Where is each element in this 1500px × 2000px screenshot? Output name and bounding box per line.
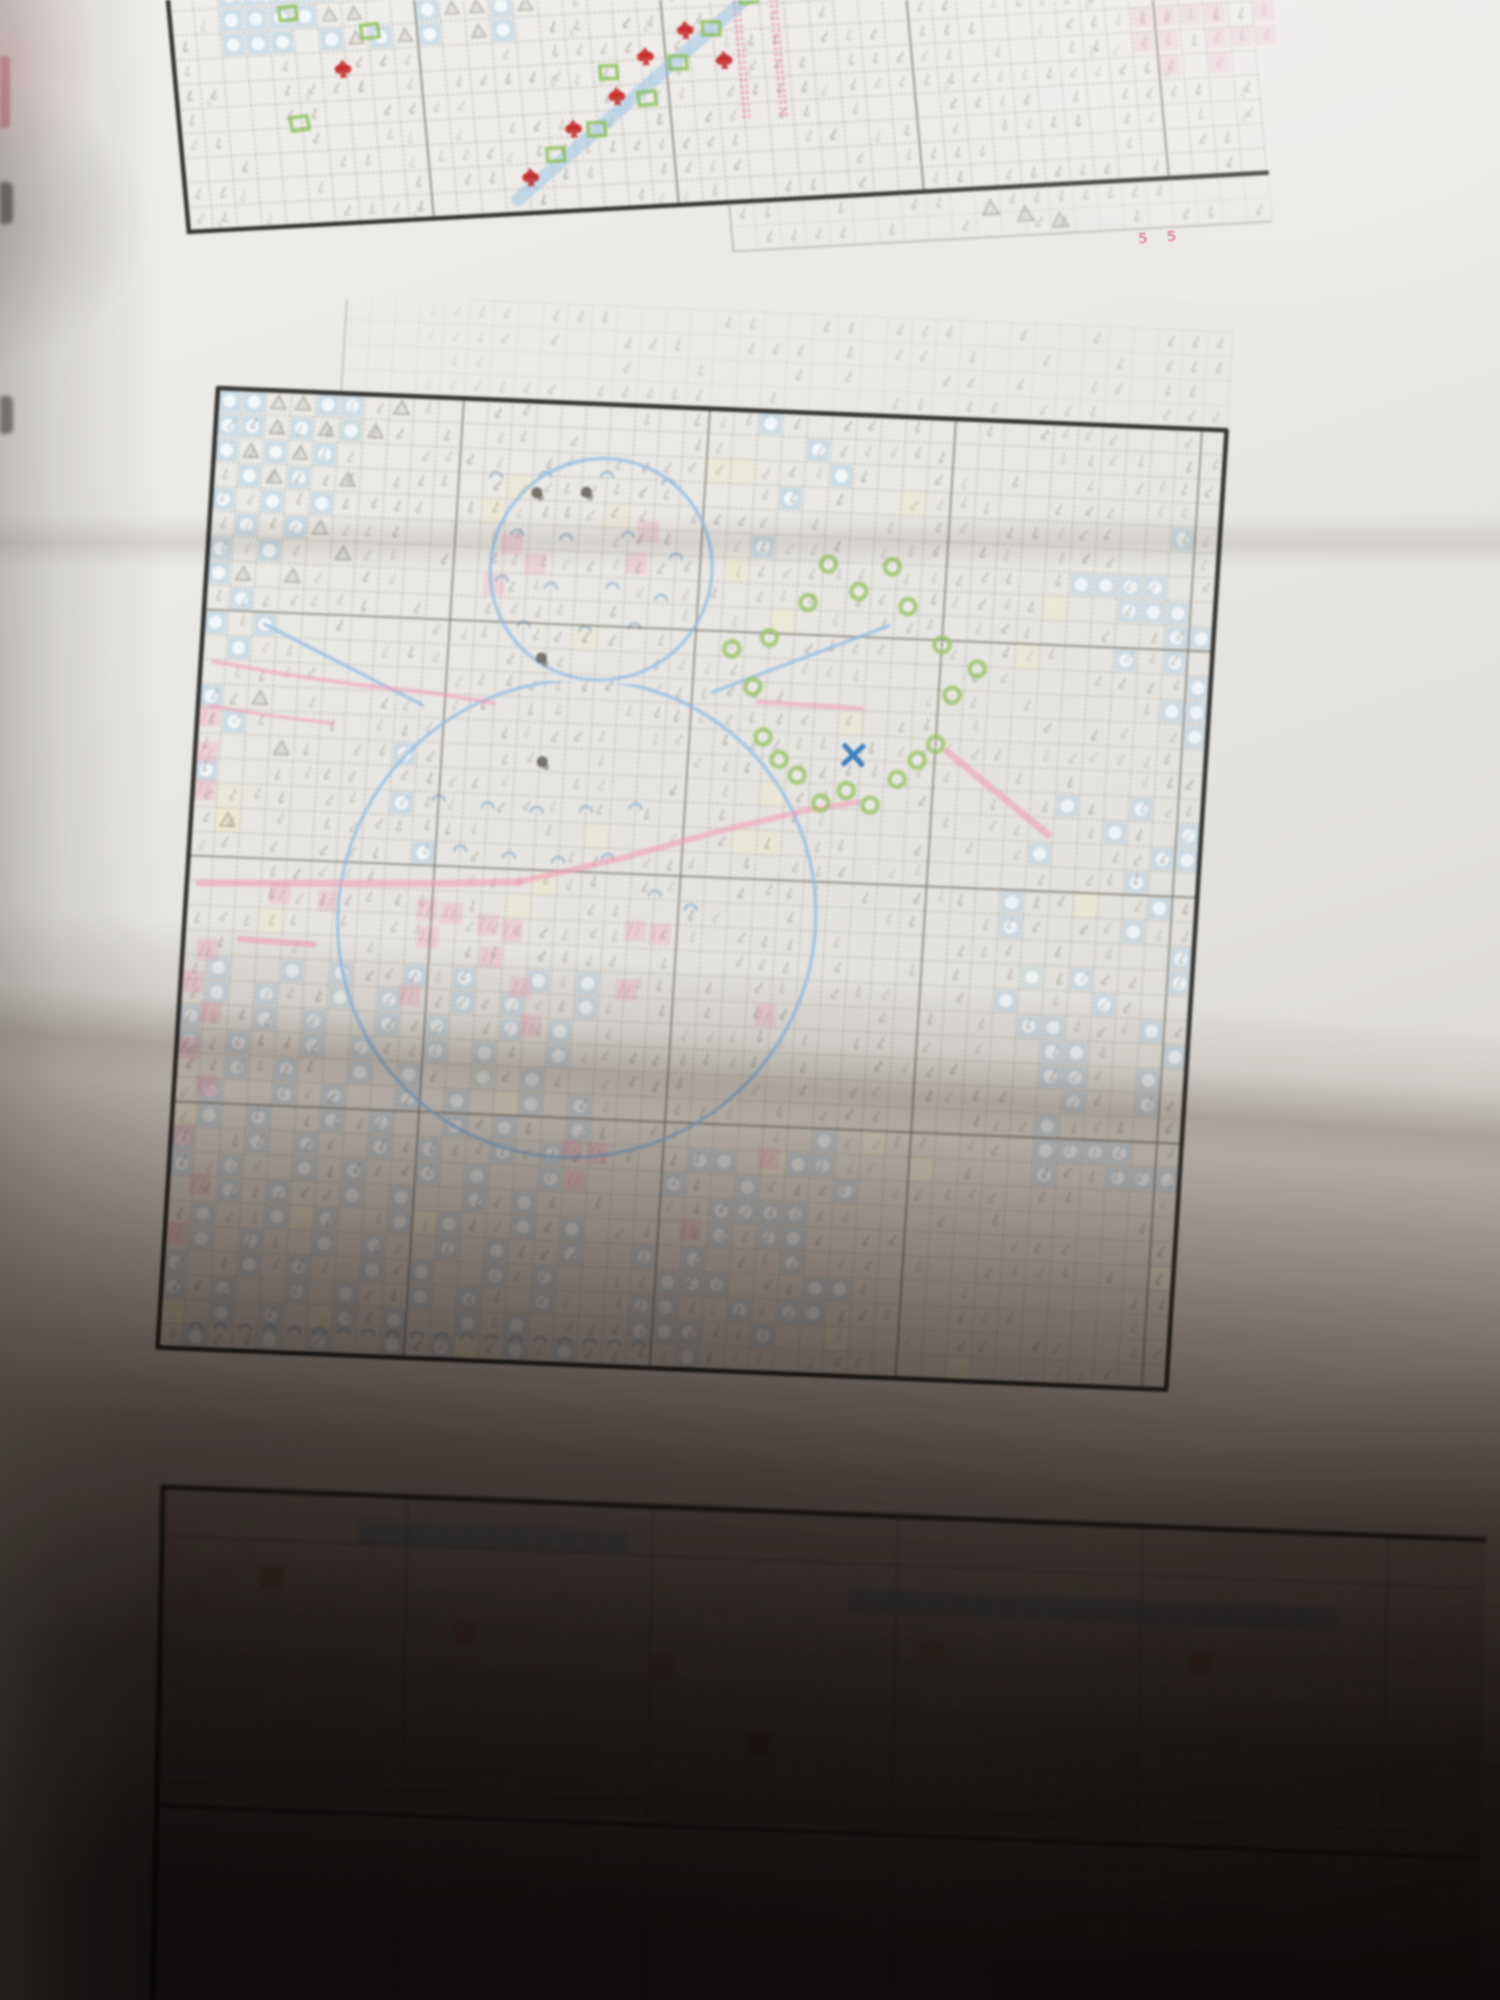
paper-edge-shadow-mark: [0, 182, 13, 224]
cross-stitch-chart-top-section: [0, 0, 1500, 320]
photo-of-cross-stitch-pattern-sheet: 5 5: [0, 0, 1500, 2000]
pink-edge-smudge: [0, 56, 10, 128]
cross-stitch-chart-snowman-section: [0, 300, 1500, 1400]
cross-stitch-chart-shadowed-section: [0, 1400, 1500, 2000]
paper-edge-shadow-mark: [0, 396, 13, 434]
page-number-label: 5 5: [1137, 228, 1183, 247]
